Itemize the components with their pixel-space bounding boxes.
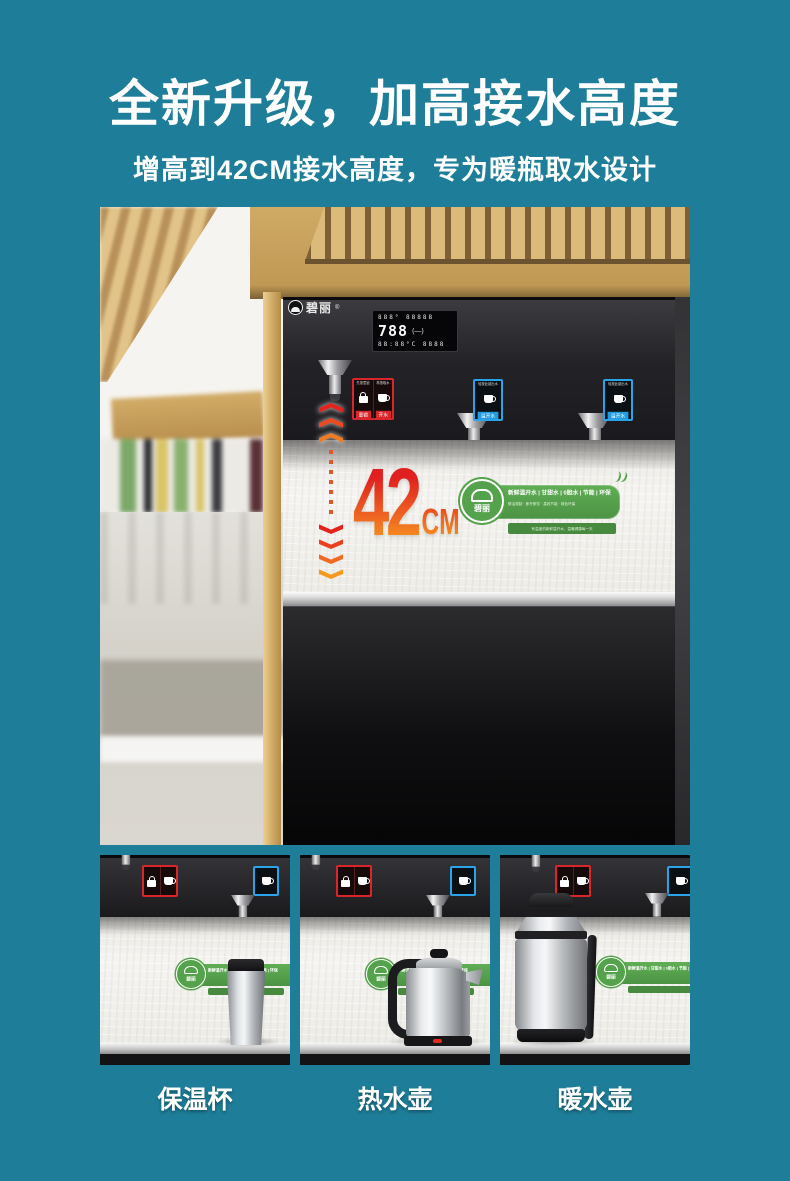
banner-brand-name: 碧丽 [474,503,490,514]
down-chevron-icon [319,551,343,564]
banner-features: 新鲜温开水 | 甘甜水 | 0胆水 | 节能 | 环保 [508,489,597,497]
cup-icon [358,867,367,895]
faucet [304,855,328,873]
cup-icon [262,868,271,894]
down-chevron-icon [319,521,343,534]
banner-logo-icon [471,489,493,502]
height-indicator-down-arrows [319,521,343,581]
cup-icon [614,387,623,410]
warm-water-panel [253,866,279,896]
hallway-doors [100,439,283,513]
page-subtitle: 增高到42CM接水高度，专为暖瓶取水设计 [0,148,790,187]
kettle-knob [430,949,448,958]
button-label: 开水 [375,411,390,418]
lower-cabinet [283,606,675,845]
child-lock-button[interactable]: 先按童锁 童锁 [354,380,373,418]
cabinet-edge [500,1054,690,1065]
panel-caption: 轻按此键出水 [608,381,628,384]
brand-logo-icon [288,300,303,315]
child-lock-panel[interactable]: 先按童锁 童锁 再按取水 开水 [352,378,394,420]
thumb-label-kettle: 热水壶 [300,1080,490,1116]
height-measure: 42 CM [353,465,460,542]
warm-water-panel [450,866,476,896]
hallway-ceiling-band [111,391,265,445]
cup-icon [577,867,586,895]
banner-subtext: 鲜活现制 · 即开即饮 · 高效节能 · 绿色环保 [508,501,573,506]
banner-strip-text: 有温度的新鲜温开水，温暖健康每一天 [531,526,592,531]
kettle-body [406,968,470,1037]
warm-water-panel-2[interactable]: 轻按此键出水 温开水 [603,379,633,421]
down-chevron-icon [319,566,343,579]
banner-logo: 碧丽 [176,959,206,989]
brand-name: 碧丽 [306,299,332,316]
down-chevron-icon [319,536,343,549]
steam-icon [612,471,626,483]
faucet [114,855,138,873]
lock-icon [147,867,156,895]
registered-mark: ® [335,305,339,311]
banner-features: 新鲜温开水 | 甘甜水 | 0胆水 | 节能 | 环保 [628,965,690,971]
floor-light-streak [100,736,283,762]
flask-shoulder [517,917,585,931]
lcd-row-main: 788 (—) [378,324,452,339]
panel-caption: 再按取水 [376,380,389,383]
thumb-label-thermos-cup: 保温杯 [100,1080,290,1116]
brand-logo: 碧丽 ® [288,299,339,316]
feature-banner: 新鲜温开水 | 甘甜水 | 0胆水 | 节能 | 环保 鲜活现制 · 即开即饮 … [460,477,660,547]
cup-icon [676,868,685,894]
lcd-mode-indicator: (—) [412,328,424,335]
banner-strip: 有温度的新鲜温开水，温暖健康每一天 [508,523,616,534]
door-accent [250,439,263,513]
child-lock-panel [142,865,178,897]
button-label: 童锁 [356,411,371,418]
panel-caption: 轻按此键出水 [478,381,498,384]
thermos-cup [226,959,266,1045]
hallway-wood-ceiling [100,207,218,382]
hero-photo: 碧丽 ® 888° 88888 788 (—) 88:88°C 8888 [100,207,690,845]
cup-icon [459,868,468,894]
flask-lid-band [525,907,577,917]
hot-water-button[interactable]: 再按取水 开水 [373,380,393,418]
up-chevron-icon [319,403,343,416]
overhang-edge [305,259,690,264]
lcd-display: 888° 88888 788 (—) 88:88°C 8888 [372,310,458,352]
flask-base [517,1029,585,1042]
cup-icon [164,867,173,895]
cabinet-edge [300,1054,490,1065]
cup-body [226,971,266,1045]
door-accent [144,439,152,513]
lock-icon [560,867,569,895]
chrome-trim [283,592,675,606]
hallway [100,207,283,845]
wall-recess [675,297,690,845]
cup-icon [484,387,493,410]
lock-icon [341,867,350,895]
faucet-nozzle [330,394,340,401]
child-lock-panel [336,865,372,897]
thumbnail-thermos-cup: 新鲜温开水 | 甘甜水 | 0胆水 | 节能 | 环保 碧丽 [100,855,290,1065]
thumbnail-kettle: 新鲜温开水 | 甘甜水 | 0胆水 | 节能 | 环保 碧丽 [300,855,490,1065]
promo-page: 全新升级，加高接水高度 增高到42CM接水高度，专为暖瓶取水设计 [0,0,790,1181]
lcd-row-bottom: 88:88°C 8888 [378,341,452,348]
door-accent [156,439,168,513]
faucet-left [318,360,352,406]
flask-body [515,939,587,1031]
up-chevron-icon [319,433,343,446]
lcd-temperature-value: 788 [378,324,408,339]
lcd-row-top: 888° 88888 [378,314,452,321]
banner-logo: 碧丽 [596,957,626,987]
button-label: 温开水 [478,412,499,419]
cup-icon [378,386,387,409]
page-title: 全新升级，加高接水高度 [0,64,790,136]
kettle-power-light [433,1039,442,1043]
height-value: 42 [353,465,419,542]
height-indicator-dotted-line [329,450,333,518]
faucet-stem [329,375,341,394]
gold-column [263,292,281,845]
up-chevron-icon [319,418,343,431]
floor-dark-band [100,660,283,738]
banner-strip [628,986,690,993]
banner-pill: 新鲜温开水 | 甘甜水 | 0胆水 | 节能 | 环保 鲜活现制 · 即开即饮 … [490,485,620,519]
door-accent [120,439,136,513]
wood-slat-overhang [305,207,690,261]
warm-water-panel-1[interactable]: 轻按此键出水 温开水 [473,379,503,421]
door-accent [196,439,204,513]
door-accent [174,439,188,513]
hallway-floor [100,512,283,845]
floor-reflections [100,512,283,604]
cup-lid [228,959,264,972]
cabinet-edge [100,1054,290,1065]
banner-logo: 碧丽 [460,479,504,523]
door-accent [212,439,222,513]
thumbnail-thermos-flask: 新鲜温开水 | 甘甜水 | 0胆水 | 节能 | 环保 碧丽 [500,855,690,1065]
electric-kettle [388,947,484,1049]
flask-collar [515,931,587,939]
height-indicator-up-arrows [319,403,343,448]
faucet [524,855,548,875]
panel-caption: 先按童锁 [357,380,370,383]
button-label: 温开水 [608,412,629,419]
height-unit: CM [422,504,460,540]
lock-icon [359,386,368,409]
faucet-bracket [318,360,352,375]
thermos-flask [512,893,590,1043]
thumb-label-thermos-flask: 暖水壶 [500,1080,690,1116]
warm-water-panel [667,866,690,896]
